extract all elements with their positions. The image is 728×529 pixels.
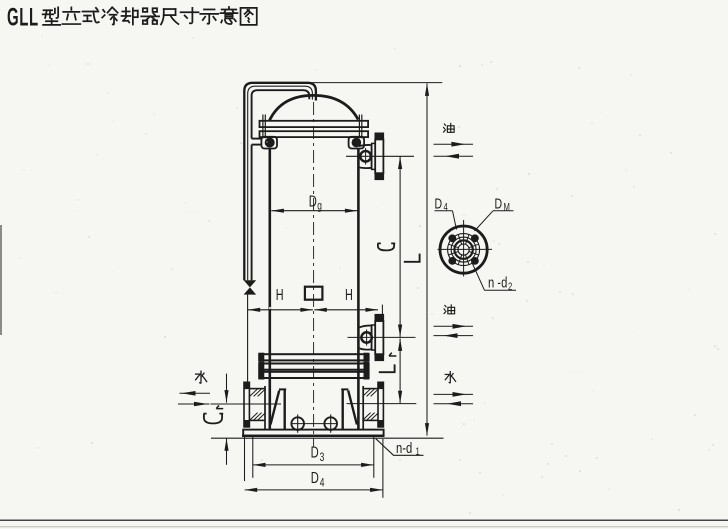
svg-text:M: M bbox=[504, 201, 510, 214]
svg-text:D: D bbox=[311, 442, 319, 461]
svg-text:D: D bbox=[495, 194, 503, 211]
svg-text:4: 4 bbox=[320, 477, 325, 490]
svg-text:4: 4 bbox=[444, 201, 448, 214]
svg-text:1: 1 bbox=[416, 446, 420, 459]
svg-text:D: D bbox=[309, 191, 317, 210]
svg-text:3: 3 bbox=[320, 452, 325, 465]
svg-text:H: H bbox=[276, 286, 284, 303]
svg-text:2: 2 bbox=[508, 281, 512, 294]
svg-text:GLL: GLL bbox=[7, 4, 39, 32]
svg-text:n-d: n-d bbox=[396, 439, 412, 456]
svg-text:D: D bbox=[435, 194, 443, 211]
svg-text:D: D bbox=[311, 468, 319, 487]
svg-text:H: H bbox=[345, 286, 353, 303]
svg-text:n -d: n -d bbox=[488, 274, 507, 291]
